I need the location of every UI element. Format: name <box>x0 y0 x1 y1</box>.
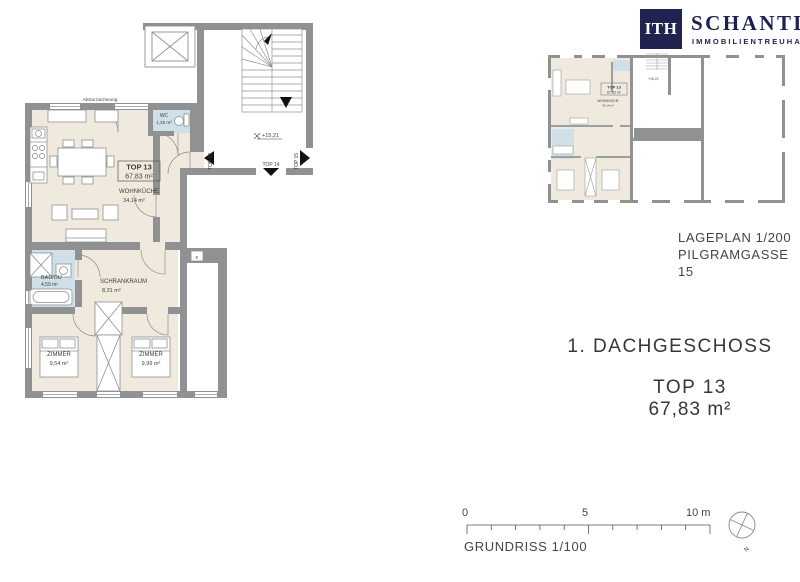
site-room-area: 34,14 m² <box>602 104 614 108</box>
scale-tick-0: 0 <box>462 507 468 519</box>
grundriss-caption: GRUNDRISS 1/100 <box>464 539 587 554</box>
site-plan: TOP 13 67,83 m² WOHNKÜCHE 34,14 m² +15,2… <box>548 50 788 208</box>
elevator-icon <box>145 26 195 67</box>
logo-subtitle: IMMOBILIENTREUHAND <box>692 37 800 46</box>
caption-address: PILGRAMGASSE 15 <box>678 246 800 280</box>
unit-box-title: TOP 13 <box>126 163 152 172</box>
room-zimmer-left-area: 9,54 m² <box>50 361 69 367</box>
area-heading: 67,83 m² <box>568 399 800 421</box>
staircase <box>242 29 302 112</box>
room-wc-name: WC <box>160 113 169 119</box>
room-zimmer-left-name: ZIMMER <box>47 352 71 358</box>
unit-box-area: 67,83 m² <box>125 174 153 181</box>
door-label-top14: TOP 14 <box>262 162 279 168</box>
unit-heading: TOP 13 <box>568 377 800 399</box>
room-wohnkueche-area: 34,14 m² <box>123 198 145 204</box>
site-level-label: +15,21 <box>648 77 659 81</box>
site-unit-title: TOP 13 <box>607 85 621 90</box>
main-floor-plan: Absturzsicherung TOP 13 67,83 m² WOHNKÜC… <box>10 15 340 415</box>
top14-door-arrow-icon <box>263 168 279 176</box>
plan-sheet: Absturzsicherung TOP 13 67,83 m² WOHNKÜC… <box>0 0 800 582</box>
room-wohnkueche-name: WOHNKÜCHE <box>119 188 159 195</box>
logo-company-name: SCHANTL <box>691 11 800 36</box>
scale-tick-5: 5 <box>582 507 588 519</box>
logo-mark: ITH <box>640 9 682 49</box>
site-plan-caption: LAGEPLAN 1/200 PILGRAMGASSE 15 <box>678 229 800 280</box>
scale-ruler <box>462 523 714 537</box>
room-zimmer-right-area: 9,99 m² <box>142 361 161 367</box>
north-compass-icon: N <box>722 505 772 560</box>
room-zimmer-right-name: ZIMMER <box>139 352 163 358</box>
caption-lageplan: LAGEPLAN 1/200 <box>678 229 800 246</box>
floor-heading: 1. DACHGESCHOSS <box>548 336 792 358</box>
site-unit-area: 67,83 m² <box>607 91 622 95</box>
shaft-label: K <box>195 255 198 260</box>
room-bad-name: BAD/DU <box>41 275 62 281</box>
logo-mark-text: ITH <box>645 19 678 39</box>
scale-tick-10: 10 m <box>686 507 710 519</box>
room-bad-area: 4,59 m² <box>41 282 58 288</box>
level-label: +15,21 <box>262 133 279 139</box>
safety-label: Absturzsicherung <box>83 97 118 102</box>
room-schrankraum-area: 8,31 m² <box>102 288 121 294</box>
door-label-top15: TOP 15 <box>294 153 300 170</box>
north-label: N <box>743 546 750 553</box>
room-wc-area: 1,26 m² <box>156 120 172 125</box>
room-schrankraum-name: SCHRANKRAUM <box>100 279 147 285</box>
door-label-top13: TOP 13 <box>208 153 214 170</box>
site-room-name: WOHNKÜCHE <box>597 99 618 103</box>
